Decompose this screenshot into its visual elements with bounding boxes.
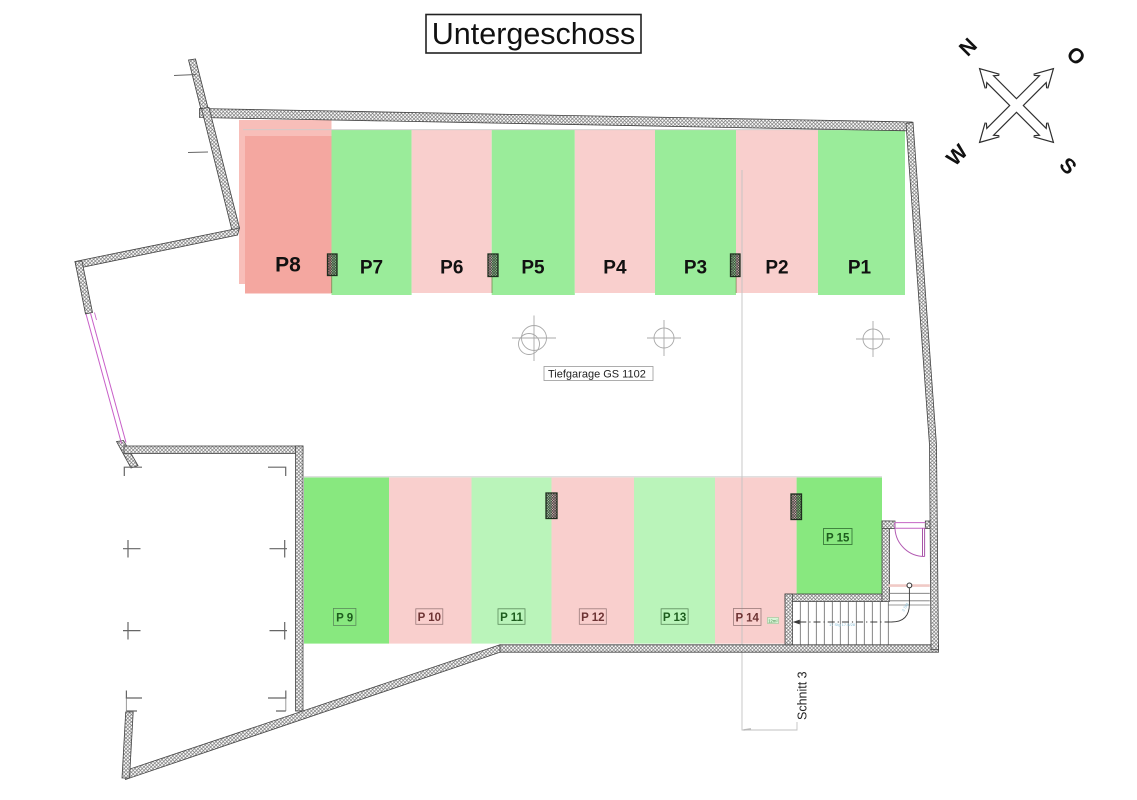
svg-text:P8: P8	[275, 254, 301, 277]
svg-text:12m²: 12m²	[768, 618, 778, 623]
svg-text:P 14: P 14	[735, 613, 759, 625]
svg-text:P 10: P 10	[418, 612, 441, 624]
svg-text:P 11: P 11	[500, 612, 523, 624]
svg-text:P4: P4	[603, 258, 627, 279]
svg-text:P 15: P 15	[826, 533, 850, 545]
svg-text:P6: P6	[440, 258, 463, 279]
svg-text:P2: P2	[765, 258, 788, 279]
svg-text:P5: P5	[521, 258, 545, 279]
svg-text:P7: P7	[360, 258, 383, 279]
svg-text:Untergeschoss: Untergeschoss	[432, 17, 635, 51]
svg-text:17 Stg 17.6/28: 17 Stg 17.6/28	[829, 622, 856, 627]
svg-text:P1: P1	[848, 258, 872, 279]
svg-text:P 13: P 13	[663, 612, 686, 624]
svg-text:P 12: P 12	[581, 612, 604, 624]
svg-text:Tiefgarage GS 1102: Tiefgarage GS 1102	[548, 369, 646, 381]
svg-text:Schnitt 3: Schnitt 3	[796, 671, 810, 720]
svg-text:P3: P3	[684, 258, 707, 279]
svg-text:P 9: P 9	[336, 613, 353, 625]
